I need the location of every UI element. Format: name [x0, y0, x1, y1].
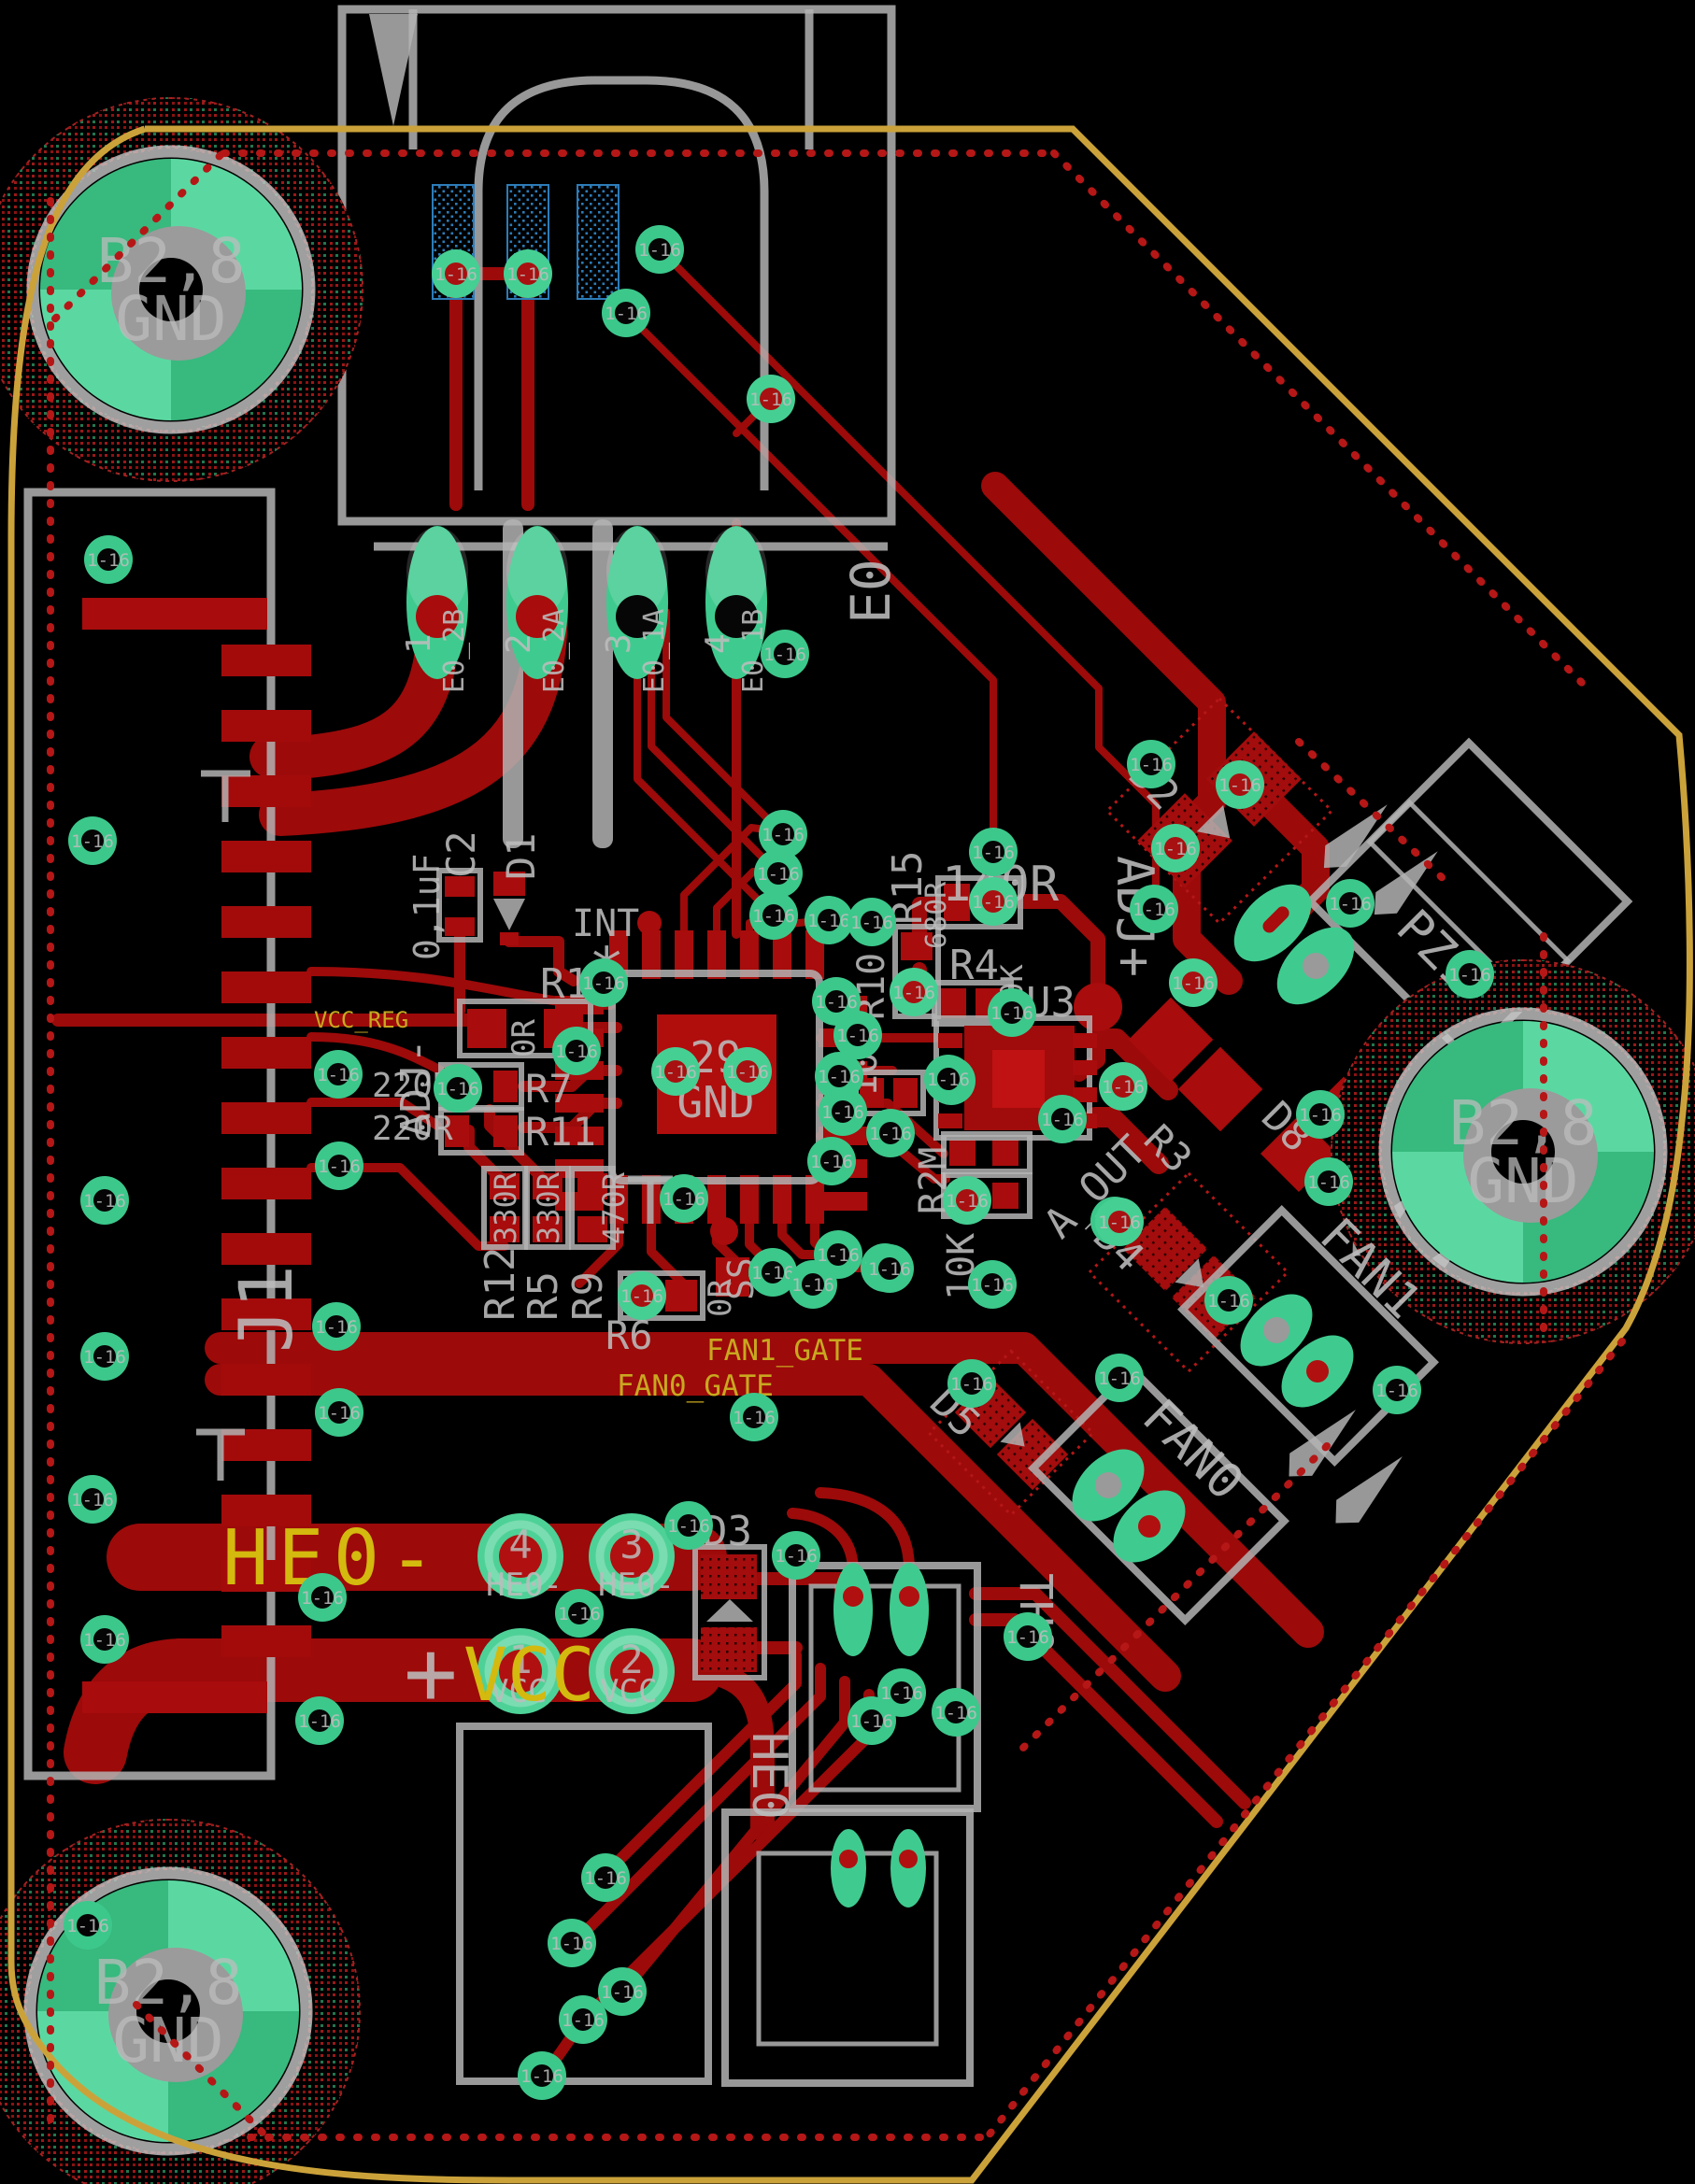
via-label: 1-16	[972, 892, 1015, 913]
via-label: 1-16	[972, 843, 1015, 863]
via[interactable]: 1-16	[1004, 1612, 1052, 1661]
via-label: 1-16	[810, 1152, 853, 1172]
via[interactable]: 1-16	[1326, 879, 1375, 928]
via-label: 1-16	[506, 264, 549, 285]
via-label: 1-16	[1172, 973, 1215, 994]
via-label: 1-16	[1207, 1291, 1250, 1312]
pad-net: VCC	[600, 1673, 657, 1710]
via-label: 1-16	[726, 1062, 769, 1083]
via[interactable]: 1-16	[68, 1475, 117, 1524]
label-he0-conn: HE0	[741, 1732, 797, 1820]
via-label: 1-16	[946, 1191, 989, 1212]
j1-pad[interactable]	[221, 1037, 311, 1069]
via[interactable]: 1-16	[815, 1052, 863, 1100]
via-label: 1-16	[584, 1868, 627, 1889]
via-label: 1-16	[868, 1259, 911, 1280]
label-r15-value: 680R	[920, 881, 953, 949]
via[interactable]: 1-16	[890, 968, 938, 1016]
via-label: 1-16	[1448, 965, 1491, 986]
via-label: 1-16	[749, 390, 792, 410]
label-plus: +	[404, 1621, 458, 1725]
via[interactable]: 1-16	[747, 375, 795, 423]
via-label: 1-16	[83, 1347, 126, 1368]
e0-pad-net: E0_1A	[638, 609, 671, 693]
via-label: 1-16	[315, 1317, 358, 1338]
via[interactable]: 1-16	[761, 630, 809, 678]
component-d1	[493, 872, 525, 945]
via-label: 1-16	[1102, 1077, 1145, 1098]
via-label: 1-16	[654, 1062, 697, 1083]
j1-pad[interactable]	[221, 1233, 311, 1265]
via-label: 1-16	[752, 906, 795, 927]
via-label: 1-16	[950, 1374, 993, 1395]
via[interactable]: 1-16	[947, 1359, 996, 1408]
via-label: 1-16	[1307, 1172, 1350, 1193]
via[interactable]: 1-16	[518, 2051, 566, 2100]
via[interactable]: 1-16	[559, 1995, 607, 2044]
via[interactable]: 1-16	[814, 1230, 862, 1279]
via-label: 1-16	[1041, 1110, 1084, 1130]
via[interactable]: 1-16	[1446, 950, 1494, 999]
via-label: 1-16	[520, 2066, 563, 2087]
via-label: 1-16	[850, 1711, 893, 1732]
j1-pad[interactable]	[221, 906, 311, 938]
via[interactable]: 1-16	[772, 1531, 820, 1580]
component-r11	[441, 1110, 521, 1153]
via[interactable]: 1-16	[723, 1047, 772, 1096]
via-label: 1-16	[880, 1683, 923, 1704]
via-label: 1-16	[555, 1042, 598, 1062]
via[interactable]: 1-16	[295, 1696, 344, 1745]
via[interactable]: 1-16	[602, 289, 650, 337]
label-r9-value: 470R	[596, 1171, 632, 1244]
label-r5: R5	[520, 1271, 567, 1321]
via[interactable]: 1-16	[312, 1302, 361, 1351]
label-r11: R11	[525, 1109, 596, 1155]
via-label: 1-16	[71, 1490, 114, 1510]
via-label: 1-16	[815, 992, 858, 1013]
via-label: 1-16	[927, 1070, 970, 1090]
via-label: 1-16	[1098, 1369, 1141, 1389]
ic-pin[interactable]	[819, 1192, 867, 1211]
via-label: 1-16	[562, 2010, 605, 2031]
via-label: 1-16	[869, 1124, 912, 1144]
j1-pad[interactable]	[221, 645, 311, 676]
via-label: 1-16	[71, 831, 114, 852]
label-c2-value: 0,1uF	[406, 854, 448, 960]
label-r12: R12	[477, 1247, 524, 1321]
via[interactable]: 1-16	[924, 1055, 973, 1103]
j1-pad[interactable]	[221, 1625, 311, 1657]
label-r4: R4	[949, 942, 999, 989]
pad-net: HE0-	[486, 1567, 563, 1604]
e0-pad-net: E0_2B	[438, 609, 471, 693]
via[interactable]: 1-16	[552, 1027, 601, 1075]
via-label: 1-16	[1329, 894, 1372, 915]
via-label: 1-16	[558, 1604, 601, 1624]
via[interactable]: 1-16	[548, 1919, 596, 1967]
via[interactable]: 1-16	[1151, 824, 1200, 872]
via-label: 1-16	[817, 1245, 860, 1266]
via[interactable]: 1-16	[1169, 958, 1218, 1007]
via-label: 1-16	[1154, 839, 1197, 859]
via-label: 1-16	[318, 1156, 361, 1177]
pad-net: HE0-	[598, 1567, 675, 1604]
label-r3: R3	[1135, 1115, 1201, 1181]
via-label: 1-16	[1218, 775, 1261, 796]
via[interactable]: 1-16	[618, 1271, 666, 1320]
via[interactable]: 1-16	[635, 225, 684, 274]
e0-pad-num: 3	[600, 633, 638, 654]
via[interactable]: 1-16	[1038, 1095, 1087, 1143]
hole-label: GND	[112, 2005, 223, 2077]
via-label: 1-16	[934, 1703, 977, 1723]
via[interactable]: 1-16	[969, 828, 1018, 876]
via-label: 1-16	[434, 264, 477, 285]
via-label: 1-16	[836, 1026, 879, 1046]
via[interactable]: 1-16	[504, 249, 552, 298]
hole-label: GND	[115, 283, 226, 355]
via-label: 1-16	[87, 550, 130, 571]
via[interactable]: 1-16	[1099, 1062, 1147, 1111]
component-d3	[695, 1547, 764, 1678]
via[interactable]: 1-16	[807, 1137, 856, 1185]
via[interactable]: 1-16	[80, 1332, 129, 1381]
via-label: 1-16	[83, 1630, 126, 1651]
via[interactable]: 1-16	[968, 1260, 1017, 1309]
label-r7: R7	[525, 1066, 573, 1112]
via[interactable]: 1-16	[730, 1393, 778, 1441]
label-r12-value: 330R	[488, 1171, 523, 1244]
via[interactable]: 1-16	[943, 1176, 991, 1225]
via[interactable]: 1-16	[315, 1388, 363, 1437]
via-label: 1-16	[971, 1275, 1014, 1296]
keepout-zone	[577, 185, 619, 299]
via[interactable]: 1-16	[1373, 1366, 1421, 1414]
via[interactable]: 1-16	[969, 877, 1018, 926]
label-r11-value: 220R	[372, 1110, 453, 1148]
refdes-j1: J1	[225, 1265, 309, 1353]
via[interactable]: 1-16	[847, 898, 896, 946]
via-label: 1-16	[436, 1079, 479, 1099]
via[interactable]: 1-16	[432, 249, 480, 298]
e0-pad-num: 1	[400, 633, 438, 654]
pad-num: 4	[508, 1522, 532, 1567]
j1-pad[interactable]	[221, 710, 311, 742]
via[interactable]: 1-16	[866, 1109, 915, 1157]
via-label: 1-16	[791, 1275, 834, 1296]
hole-label: GND	[1467, 1145, 1578, 1217]
via[interactable]: 1-16	[805, 896, 853, 944]
label-fan1-gate: FAN1_GATE	[706, 1334, 863, 1368]
via[interactable]: 1-16	[651, 1047, 700, 1096]
via-label: 1-16	[662, 1189, 705, 1210]
label-vcc: VCC	[463, 1634, 595, 1718]
via[interactable]: 1-16	[664, 1501, 713, 1550]
connector-he0[interactable]	[725, 1812, 970, 2083]
via-label: 1-16	[317, 1065, 360, 1085]
j1-pad[interactable]	[221, 841, 311, 872]
via-label: 1-16	[1098, 1213, 1141, 1233]
via[interactable]: 1-16	[579, 958, 628, 1007]
via-label: 1-16	[763, 645, 806, 665]
via-label: 1-16	[1299, 1105, 1342, 1126]
label-r5-value: 330R	[531, 1171, 566, 1244]
via-label: 1-16	[582, 973, 625, 994]
via[interactable]: 1-16	[847, 1696, 896, 1745]
label-vcc-reg: VCC_REG	[314, 1007, 408, 1033]
via[interactable]: 1-16	[64, 1901, 112, 1950]
via[interactable]: 1-16	[1127, 740, 1175, 788]
via[interactable]: 1-16	[1204, 1276, 1253, 1325]
via[interactable]: 1-16	[988, 988, 1036, 1037]
via-label: 1-16	[807, 911, 850, 931]
refdes-e0: E0	[839, 559, 903, 624]
label-d1: D1	[498, 832, 544, 880]
via[interactable]: 1-16	[84, 535, 133, 584]
via-label: 1-16	[1132, 900, 1175, 920]
via[interactable]: 1-16	[865, 1244, 914, 1293]
label-r1-value: 0R	[506, 1019, 543, 1057]
pcb-layout-canvas[interactable]: 1 E0_2B 2 E0_2A 3 E0_1A 4 E0_1B E0 J1 29…	[0, 0, 1695, 2184]
via-label: 1-16	[990, 1003, 1033, 1024]
via[interactable]: 1-16	[80, 1176, 129, 1225]
via[interactable]: 1-16	[555, 1589, 604, 1638]
via[interactable]: 1-16	[660, 1174, 708, 1223]
via-label: 1-16	[550, 1934, 593, 1954]
via[interactable]: 1-16	[314, 1050, 363, 1099]
via-label: 1-16	[850, 913, 893, 933]
via-label: 1-16	[66, 1916, 109, 1936]
via[interactable]: 1-16	[315, 1142, 363, 1190]
via-label: 1-16	[1130, 755, 1173, 775]
e0-pad-net: E0_2A	[538, 609, 571, 693]
via-label: 1-16	[638, 240, 681, 261]
via[interactable]: 1-16	[1095, 1198, 1144, 1246]
via-label: 1-16	[751, 1263, 794, 1283]
via[interactable]: 1-16	[68, 816, 117, 865]
via[interactable]: 1-16	[1216, 760, 1264, 809]
via-label: 1-16	[601, 1982, 644, 2003]
via-label: 1-16	[733, 1408, 776, 1428]
j1-pad[interactable]	[221, 1102, 311, 1134]
via-label: 1-16	[605, 304, 648, 324]
pad-num: 3	[620, 1522, 643, 1567]
via-label: 1-16	[301, 1588, 344, 1609]
j1-pad[interactable]	[221, 971, 311, 1003]
via-label: 1-16	[821, 1102, 864, 1123]
via[interactable]: 1-16	[932, 1688, 980, 1737]
via-label: 1-16	[83, 1191, 126, 1212]
via-label: 1-16	[892, 983, 935, 1003]
via[interactable]: 1-16	[434, 1064, 482, 1113]
j1-pad[interactable]	[221, 775, 311, 807]
via[interactable]: 1-16	[749, 891, 798, 940]
j1-pad[interactable]	[221, 1168, 311, 1199]
via-label: 1-16	[318, 1403, 361, 1424]
via[interactable]: 1-16	[80, 1615, 129, 1664]
e0-pad-num: 2	[500, 633, 538, 654]
via-label: 1-16	[1006, 1627, 1049, 1648]
via[interactable]: 1-16	[1130, 885, 1178, 933]
via-label: 1-16	[620, 1286, 663, 1307]
via[interactable]: 1-16	[754, 849, 803, 898]
via[interactable]: 1-16	[1304, 1157, 1353, 1206]
via[interactable]: 1-16	[1296, 1090, 1345, 1139]
j1-pad[interactable]	[221, 1364, 311, 1396]
via[interactable]: 1-16	[1095, 1354, 1144, 1402]
via-label: 1-16	[298, 1711, 341, 1732]
via-label: 1-16	[818, 1067, 861, 1087]
via[interactable]: 1-16	[298, 1573, 347, 1622]
via-label: 1-16	[775, 1546, 818, 1567]
via-label: 1-16	[667, 1516, 710, 1537]
e0-pad-num: 4	[699, 633, 737, 654]
via-label: 1-16	[757, 864, 800, 885]
via[interactable]: 1-16	[581, 1853, 630, 1902]
via[interactable]: 1-16	[598, 1967, 647, 2016]
via-label: 1-16	[762, 825, 805, 845]
via-label: 1-16	[1375, 1381, 1418, 1401]
